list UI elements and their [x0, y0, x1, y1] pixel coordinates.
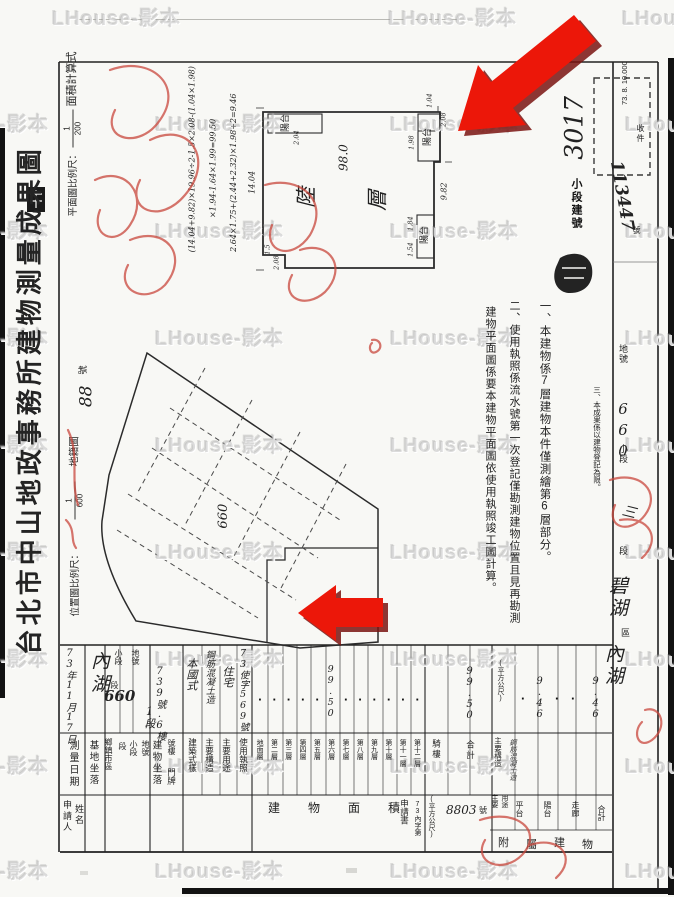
red-scrawl-marks: [66, 66, 661, 878]
red-arrow-bottom: [298, 585, 388, 646]
annotation-layer: [0, 0, 674, 897]
red-arrow-top: [458, 15, 602, 136]
scanned-survey-document: LHouse-影本LHouse-影本LHouse-影本LHouse-影本LHou…: [0, 0, 674, 897]
